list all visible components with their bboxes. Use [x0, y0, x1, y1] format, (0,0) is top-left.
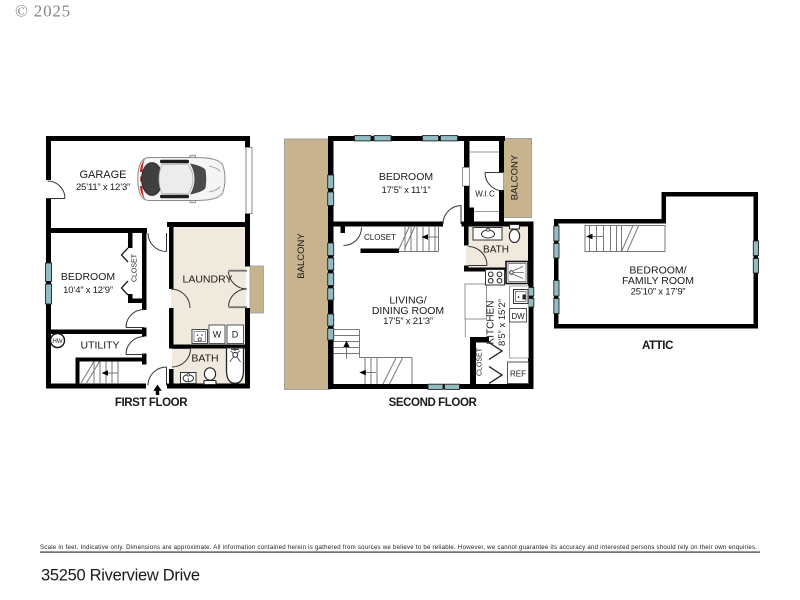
svg-text:FAMILY ROOM: FAMILY ROOM	[622, 275, 694, 287]
svg-text:© 2025: © 2025	[15, 2, 71, 21]
svg-text:GARAGE: GARAGE	[79, 169, 126, 181]
svg-text:BATH: BATH	[483, 245, 509, 256]
svg-text:17’5” x 11’1”: 17’5” x 11’1”	[382, 185, 431, 196]
svg-text:W.I.C: W.I.C	[475, 190, 495, 199]
svg-text:FIRST FLOOR: FIRST FLOOR	[115, 397, 188, 409]
svg-text:BALCONY: BALCONY	[296, 233, 307, 279]
svg-text:BEDROOM: BEDROOM	[379, 171, 433, 183]
svg-text:REF: REF	[510, 370, 526, 379]
svg-text:Scale in feet. Indicative only: Scale in feet. Indicative only. Dimensio…	[40, 544, 757, 551]
svg-text:HW: HW	[52, 338, 62, 345]
svg-text:DW: DW	[511, 312, 525, 321]
svg-text:BATH: BATH	[191, 353, 218, 365]
svg-text:ATTIC: ATTIC	[642, 340, 673, 352]
svg-text:CLOSET: CLOSET	[364, 233, 396, 242]
svg-text:BALCONY: BALCONY	[510, 154, 521, 200]
svg-text:W: W	[213, 330, 222, 340]
svg-text:D: D	[232, 330, 239, 340]
svg-text:10’4” x 12’9”: 10’4” x 12’9”	[63, 285, 113, 296]
svg-text:35250 Riverview Drive: 35250 Riverview Drive	[41, 567, 200, 585]
svg-text:CLOSET: CLOSET	[477, 347, 484, 376]
svg-text:SECOND FLOOR: SECOND FLOOR	[389, 397, 478, 409]
svg-text:UTILITY: UTILITY	[80, 340, 119, 352]
svg-text:CLOSET: CLOSET	[132, 253, 139, 282]
svg-text:BEDROOM: BEDROOM	[61, 271, 115, 283]
svg-text:8’5” x 15’2”: 8’5” x 15’2”	[497, 299, 508, 346]
svg-text:17’5” x 21’3”: 17’5” x 21’3”	[383, 316, 433, 327]
svg-text:25’10” x 17’9”: 25’10” x 17’9”	[631, 287, 686, 298]
svg-text:LAUNDRY: LAUNDRY	[183, 274, 233, 286]
svg-text:25’11” x 12’3”: 25’11” x 12’3”	[76, 182, 130, 193]
